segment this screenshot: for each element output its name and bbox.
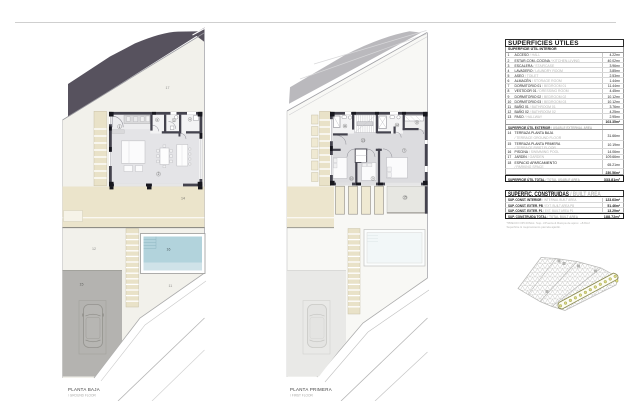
svg-text:16: 16 [167,247,171,251]
svg-text:PLANTA BAJA: PLANTA BAJA [68,387,100,392]
svg-text:1: 1 [119,125,121,129]
svg-text:15: 15 [403,196,407,200]
svg-text:11: 11 [169,284,173,288]
svg-text:17: 17 [166,86,170,90]
svg-text:10: 10 [350,177,354,181]
svg-text:/ GROUND FLOOR: / GROUND FLOOR [68,394,97,398]
svg-text:2: 2 [158,172,160,176]
svg-text:PLANTA PRIMERA: PLANTA PRIMERA [290,387,332,392]
svg-text:/ FIRST FLOOR: / FIRST FLOOR [290,394,313,398]
svg-text:12: 12 [92,247,96,251]
svg-text:14: 14 [181,197,185,201]
svg-text:11: 11 [343,124,346,128]
svg-text:15: 15 [80,283,84,287]
svg-text:13: 13 [361,139,365,143]
svg-text:12: 12 [395,123,399,127]
